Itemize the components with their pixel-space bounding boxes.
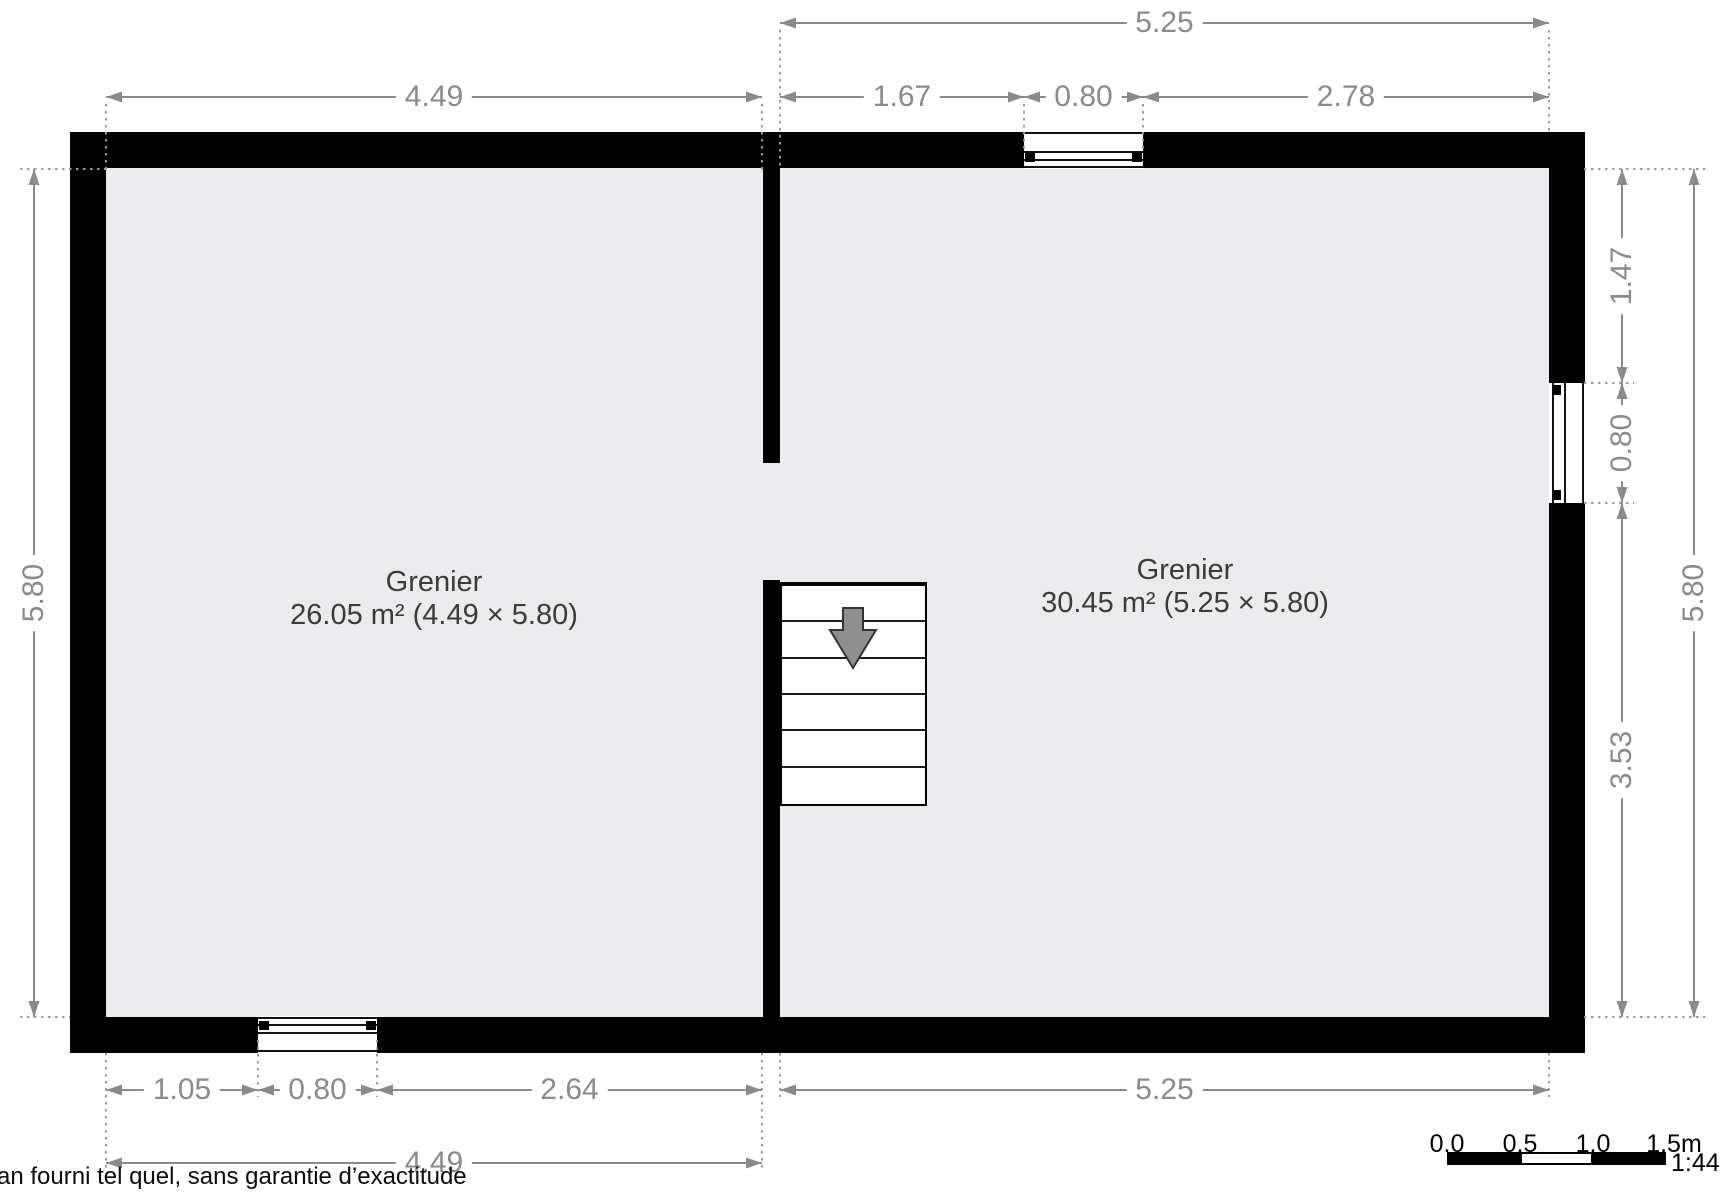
dimension-label: 0.80: [1605, 405, 1639, 481]
dimension-label: 4.49: [396, 80, 472, 114]
disclaimer-text: an fourni tel quel, sans garantie d’exac…: [0, 1163, 467, 1191]
dimension-label: 5.80: [1677, 555, 1711, 631]
dimension-label: 1.47: [1605, 238, 1639, 314]
dimension-label: 5.25: [1126, 1073, 1202, 1107]
dimension-label: 1.67: [864, 80, 940, 114]
stairs-direction-arrow-icon: [0, 0, 1731, 1200]
floor-plan-canvas: Grenier 26.05 m² (4.49 × 5.80) Grenier 3…: [0, 0, 1731, 1200]
dimension-label: 2.64: [531, 1073, 607, 1107]
dimension-label: 5.80: [17, 555, 51, 631]
dimension-label: 5.25: [1126, 6, 1202, 40]
dimension-label: 3.53: [1605, 722, 1639, 798]
dimension-label: 0.80: [279, 1073, 355, 1107]
dimension-label: 1.05: [144, 1073, 220, 1107]
dimension-label: 0.80: [1045, 80, 1121, 114]
dimension-label: 2.78: [1308, 80, 1384, 114]
